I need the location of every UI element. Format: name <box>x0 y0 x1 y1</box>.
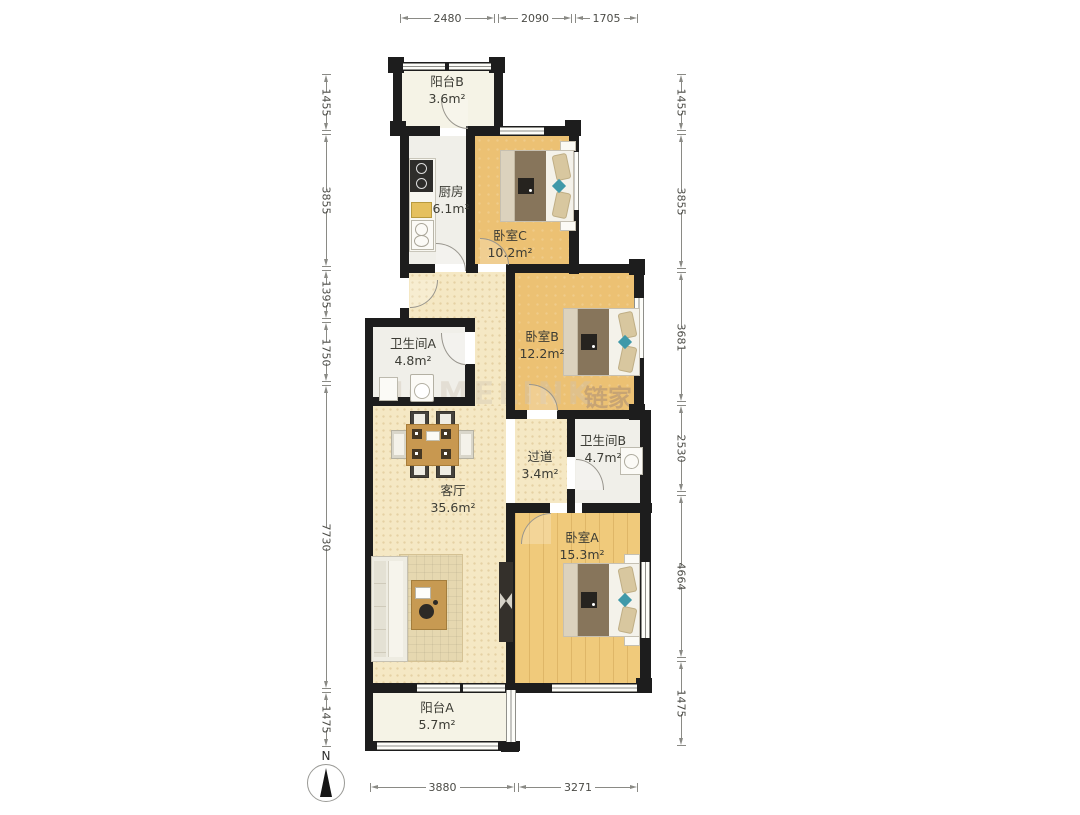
nightstand-icon <box>560 141 576 151</box>
compass-circle <box>307 764 345 802</box>
room-area: 35.6m² <box>430 500 475 517</box>
window <box>449 63 491 70</box>
room-area: 15.3m² <box>559 547 604 564</box>
pillow-icon <box>617 311 637 340</box>
room-area: 5.7m² <box>418 717 455 734</box>
cutting-board-icon <box>411 202 432 218</box>
kettle-icon <box>419 604 434 619</box>
sofa-back <box>374 561 386 657</box>
window <box>552 684 637 692</box>
room-label-bedroom-a: 卧室A 15.3m² <box>559 530 604 563</box>
window <box>403 63 445 70</box>
room-name: 阳台B <box>428 74 465 91</box>
room-area: 6.1m² <box>432 201 469 218</box>
bed-accent <box>552 179 566 193</box>
room-name: 卧室A <box>559 530 604 547</box>
room-label-kitchen: 厨房 6.1m² <box>432 184 469 217</box>
dim-left-1: 1455 <box>320 74 332 131</box>
washbasin-icon <box>379 377 398 401</box>
bed-icon <box>500 150 574 222</box>
toilet-icon <box>410 374 434 402</box>
room-name: 卧室C <box>487 228 532 245</box>
dim-right-1: 1455 <box>675 74 687 131</box>
tv-icon <box>506 593 512 609</box>
wall <box>465 318 475 332</box>
dim-top-1: 2480 <box>400 12 495 24</box>
placemat-icon <box>412 449 422 459</box>
window <box>506 690 516 742</box>
bed-tray-icon <box>581 592 597 608</box>
wall <box>567 489 575 513</box>
dim-right-4: 2530 <box>675 405 687 492</box>
wall <box>506 264 515 418</box>
dim-left-5: 7730 <box>320 385 332 689</box>
sliding-door <box>463 684 505 692</box>
placemat-icon <box>441 449 451 459</box>
placemat-icon <box>441 429 451 439</box>
bed-tray-icon <box>581 334 597 350</box>
room-label-bedroom-b: 卧室B 12.2m² <box>519 329 564 362</box>
sofa-icon <box>371 556 408 662</box>
dim-top-2: 2090 <box>498 12 572 24</box>
pillow-icon <box>617 345 637 374</box>
room-label-living-room: 客厅 35.6m² <box>430 483 475 516</box>
window <box>641 562 650 638</box>
dim-right-3: 3681 <box>675 272 687 402</box>
room-area: 10.2m² <box>487 245 532 262</box>
window <box>500 127 544 135</box>
remote-icon <box>415 587 431 599</box>
wardrobe-strip <box>564 564 578 636</box>
wall <box>400 126 409 278</box>
sofa-seat <box>388 561 403 657</box>
room-name: 客厅 <box>430 483 475 500</box>
north-compass: N <box>303 749 349 802</box>
north-arrow-icon <box>320 768 332 797</box>
wall-post <box>636 678 652 693</box>
pillow-icon <box>617 606 637 635</box>
wall <box>506 410 527 419</box>
wardrobe-strip <box>564 309 578 375</box>
dim-right-5: 4664 <box>675 495 687 658</box>
pillow-icon <box>617 566 637 595</box>
bed-accent <box>618 593 632 607</box>
nightstand-icon <box>624 636 640 646</box>
room-label-hallway: 过道 3.4m² <box>521 449 558 482</box>
wall-post <box>489 57 505 73</box>
dim-left-4: 1750 <box>320 322 332 382</box>
dim-left-2: 3855 <box>320 134 332 267</box>
room-area: 3.6m² <box>428 91 465 108</box>
wall <box>365 318 475 327</box>
room-area: 4.8m² <box>390 353 436 370</box>
room-name: 卫生间A <box>390 336 436 353</box>
placemat-icon <box>412 429 422 439</box>
wall <box>400 264 435 273</box>
bed-icon <box>563 308 640 376</box>
wall-post <box>388 57 404 73</box>
room-name: 卫生间B <box>580 433 626 450</box>
dim-top-3: 1705 <box>575 12 638 24</box>
wall <box>466 264 478 273</box>
dim-right-2: 3855 <box>675 134 687 269</box>
pillow-icon <box>551 153 571 182</box>
bed-icon <box>563 563 640 637</box>
room-name: 阳台A <box>418 700 455 717</box>
dim-left-6: 1475 <box>320 692 332 747</box>
room-area: 4.7m² <box>580 450 626 467</box>
dim-left-3: 1395 <box>320 270 332 319</box>
dining-chair-icon <box>391 430 407 459</box>
wall-post <box>501 741 519 752</box>
dim-right-6: 1475 <box>675 661 687 746</box>
bed-tray-icon <box>518 178 534 194</box>
room-label-balcony-a: 阳台A 5.7m² <box>418 700 455 733</box>
room-name: 厨房 <box>432 184 469 201</box>
wall <box>508 264 644 273</box>
dim-bottom-2: 3271 <box>518 781 638 793</box>
sink-icon <box>411 220 434 250</box>
room-label-bathroom-b: 卫生间B 4.7m² <box>580 433 626 466</box>
wall-post <box>629 259 645 275</box>
room-area: 12.2m² <box>519 346 564 363</box>
stove-icon <box>410 160 433 192</box>
room-label-bathroom-a: 卫生间A 4.8m² <box>390 336 436 369</box>
room-label-balcony-b: 阳台B 3.6m² <box>428 74 465 107</box>
wardrobe-strip <box>501 151 515 221</box>
dish-icon <box>426 431 440 441</box>
room-name: 过道 <box>521 449 558 466</box>
room-area: 3.4m² <box>521 466 558 483</box>
dim-bottom-1: 3880 <box>370 781 515 793</box>
nightstand-icon <box>560 221 576 231</box>
window <box>377 742 498 750</box>
dining-chair-icon <box>458 430 474 459</box>
wall-post <box>565 120 581 136</box>
nightstand-icon <box>624 554 640 564</box>
pillow-icon <box>551 191 571 220</box>
room-name: 卧室B <box>519 329 564 346</box>
room-label-bedroom-c: 卧室C 10.2m² <box>487 228 532 261</box>
decor-dot <box>433 600 438 605</box>
sliding-door <box>417 684 460 692</box>
floor-plan: HOMELINK 链家 com <box>0 0 1080 815</box>
north-label: N <box>303 749 349 763</box>
wall <box>567 410 575 457</box>
